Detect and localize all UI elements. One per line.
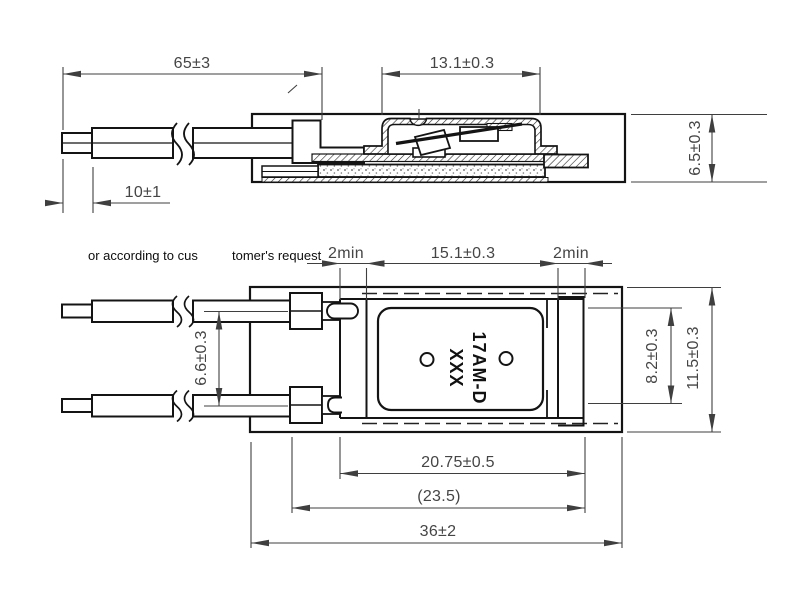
plan-wire-stripped-end	[62, 399, 92, 412]
note-custom-lead-left: or according to cus	[88, 248, 198, 263]
dim-lead-spacing: 6.6±0.3	[193, 330, 210, 385]
dim-clearance-left: 2min	[328, 245, 364, 262]
dim-cap-width: 13.1±0.3	[430, 55, 495, 72]
spot-weld-left	[421, 353, 434, 366]
part-marking-temp-code: XXX	[446, 348, 466, 387]
dim-ref-length: (23.5)	[417, 488, 461, 505]
dim-cap-length: 15.1±0.3	[431, 245, 496, 262]
dim-strip-length: 10±1	[125, 184, 162, 201]
drawing-canvas: 65±3 13.1±0.3 10±1 6.5±0.3	[0, 0, 787, 591]
side-insulation-layer	[318, 165, 545, 178]
mounting-slot-partial	[328, 398, 342, 413]
plan-view: 17AM-D XXX	[62, 245, 721, 548]
dim-overall-width: 11.5±0.3	[685, 326, 702, 389]
part-marking-model: 17AM-D	[469, 331, 489, 404]
side-bottom-plate	[262, 178, 548, 183]
side-lead-wire	[62, 123, 293, 165]
technical-drawing: 65±3 13.1±0.3 10±1 6.5±0.3	[0, 0, 787, 591]
side-right-terminal	[544, 155, 588, 168]
dim-base-length: 20.75±0.5	[421, 454, 495, 471]
spot-weld-right	[500, 352, 513, 365]
side-view: 65±3 13.1±0.3 10±1 6.5±0.3	[45, 55, 767, 213]
dim-lead-length: 65±3	[174, 55, 211, 72]
dim-overall-length: 36±2	[420, 523, 457, 540]
dim-body-width: 8.2±0.3	[644, 328, 661, 383]
mounting-slot	[327, 304, 358, 319]
plan-wire-stripped-end	[62, 305, 92, 318]
dim-side-height: 6.5±0.3	[687, 120, 704, 175]
note-custom-lead-right: tomer's request	[232, 248, 322, 263]
dim-clearance-right: 2min	[553, 245, 589, 262]
